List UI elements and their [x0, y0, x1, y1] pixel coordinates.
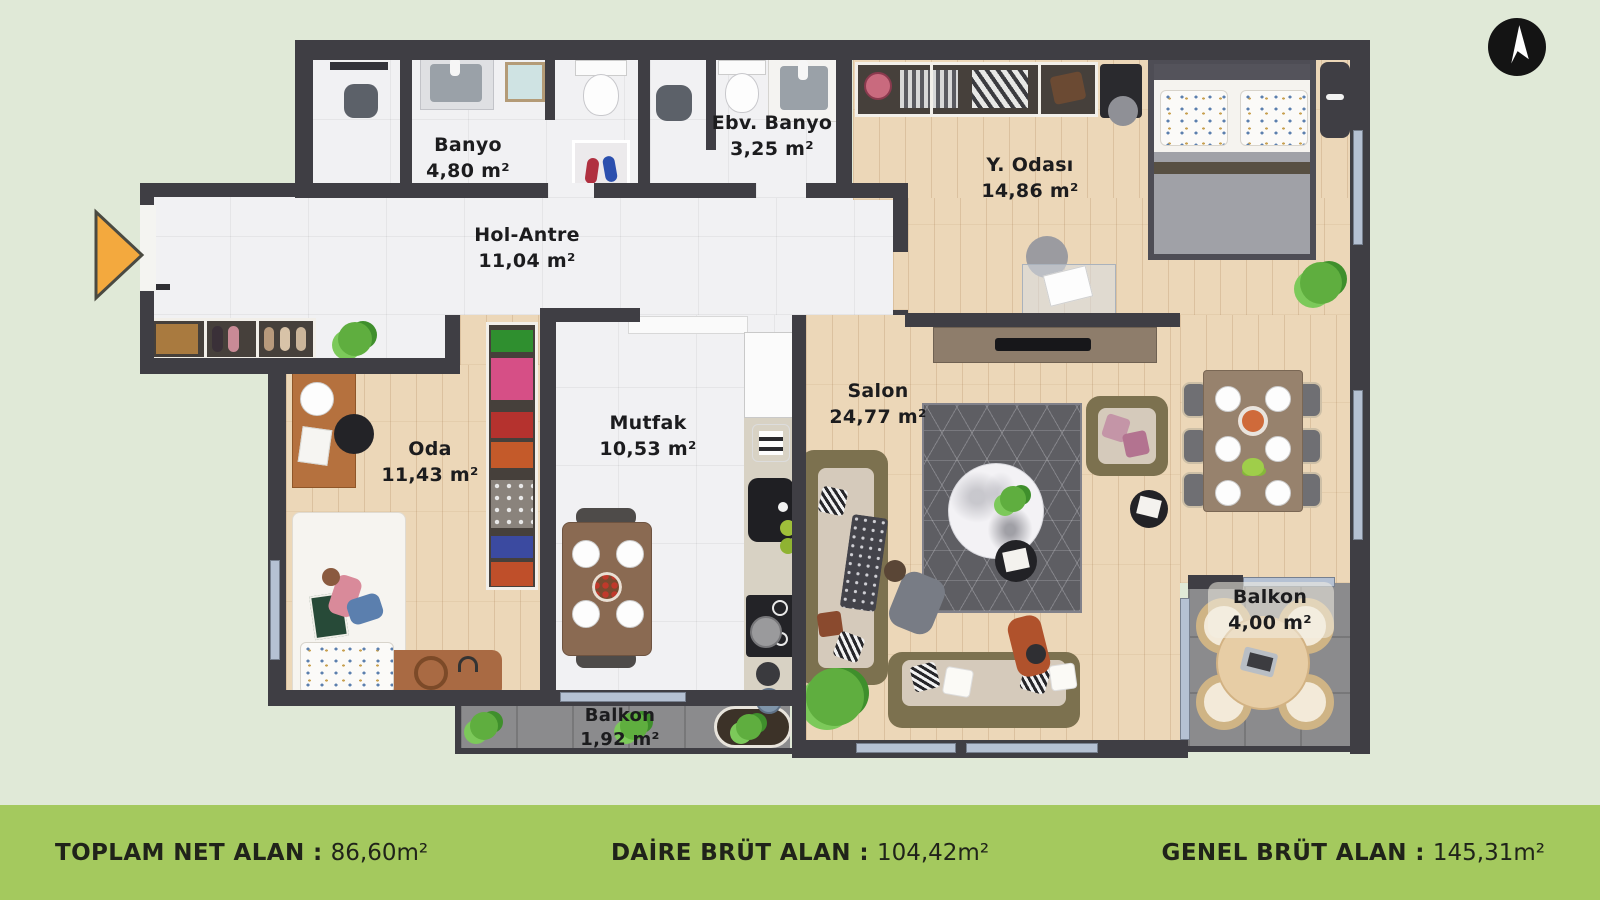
pillow: [1160, 90, 1228, 146]
tv: [995, 338, 1091, 351]
serving-bowl: [1238, 406, 1268, 436]
bed-headboard: [1154, 64, 1310, 80]
wall-kitchen-top: [540, 308, 640, 322]
room-label-hol-antre: Hol-Antre11,04 m²: [447, 222, 607, 274]
slipper: [228, 326, 239, 352]
balcony-plant: [470, 712, 498, 740]
plate: [1265, 386, 1291, 412]
shower-head: [344, 84, 378, 118]
wall-bath-divider: [545, 60, 555, 120]
summary-value: 145,31m²: [1433, 840, 1545, 866]
wall-top: [295, 40, 1370, 60]
nightstand: [1320, 62, 1350, 138]
kettle: [756, 662, 780, 686]
shoe-rack-divider: [256, 320, 259, 358]
summary-label: GENEL BRÜT ALAN :: [1162, 840, 1425, 866]
shower-head: [656, 85, 692, 121]
throw-pillow: [818, 486, 849, 517]
room-label-balkon-large: Balkon4,00 m²: [1190, 584, 1350, 636]
shoe-rack-divider: [204, 320, 207, 358]
wardrobe-divider: [1038, 64, 1041, 114]
person-head: [322, 568, 340, 586]
window-living-2: [966, 743, 1098, 753]
entrance-arrow-icon: [92, 208, 148, 302]
window-living-1: [856, 743, 956, 753]
wall-left-upper: [295, 40, 313, 198]
wall-jog: [445, 315, 460, 370]
entry-door-mark: [156, 284, 170, 290]
floor-plant: [806, 668, 864, 726]
folded-clothes: [900, 70, 958, 108]
shelf-box-red: [491, 412, 533, 438]
summary-value: 104,42m²: [877, 840, 989, 866]
toilet-bowl: [583, 74, 619, 116]
summary-general-gross-area: GENEL BRÜT ALAN : 145,31m²: [1162, 805, 1545, 900]
potted-plant: [1300, 262, 1342, 304]
planter-plant: [736, 714, 762, 740]
faucet: [778, 502, 788, 512]
faucet: [798, 60, 808, 80]
door-opening-bedroom: [893, 252, 908, 310]
slipper: [280, 327, 290, 351]
person-head: [1026, 644, 1046, 664]
door-opening-ensuite: [756, 183, 806, 198]
window-kitchen: [560, 692, 686, 702]
headphones: [458, 656, 478, 672]
plate: [616, 600, 644, 628]
plate: [1265, 436, 1291, 462]
balcony-rail-bottom-right: [1188, 746, 1353, 752]
window-bedroom: [1353, 130, 1363, 245]
summary-value: 86,60m²: [331, 840, 428, 866]
plate: [1215, 436, 1241, 462]
wall-bath-bottom: [295, 183, 908, 198]
wall-room-bottom: [268, 690, 560, 706]
throw-pillow: [942, 666, 974, 698]
room-label-mutfak: Mutfak10,53 m²: [568, 410, 728, 462]
grapes: [1242, 458, 1264, 476]
potted-plant: [338, 322, 372, 356]
room-label-y-odasi: Y. Odası14,86 m²: [950, 152, 1110, 204]
slipper: [296, 327, 306, 351]
plate: [572, 600, 600, 628]
shower-rail: [330, 62, 388, 70]
slipper: [212, 326, 223, 352]
summary-label: TOPLAM NET ALAN :: [55, 840, 323, 866]
burner: [772, 600, 788, 616]
shelf-box-orange2: [491, 562, 533, 586]
summary-net-area: TOPLAM NET ALAN : 86,60m²: [55, 805, 428, 900]
plate: [616, 540, 644, 568]
wall-hall-top: [140, 183, 312, 197]
hat-box: [864, 72, 892, 100]
papers: [298, 426, 333, 466]
mirror: [505, 62, 545, 102]
floor-plan-page: Banyo4,80 m² Ebv. Banyo3,25 m² Y. Odası1…: [0, 0, 1600, 900]
wall-tv: [905, 313, 1180, 327]
north-arrow-icon: [1486, 16, 1548, 78]
summary-gross-area: DAİRE BRÜT ALAN : 104,42m²: [611, 805, 989, 900]
balcony-rail-left: [455, 700, 461, 752]
window-balcony-side: [1180, 598, 1190, 740]
plate: [572, 540, 600, 568]
mat-ring-decor: [414, 656, 448, 690]
faucet: [450, 58, 460, 76]
folded-clothes: [972, 70, 1028, 108]
pink-pillow: [1122, 430, 1150, 458]
shoe-box: [156, 324, 198, 354]
kitchen-counter-top: [628, 316, 748, 334]
wardrobe-divider: [930, 64, 933, 114]
person-head: [884, 560, 906, 582]
wall-hall-bottom: [140, 358, 460, 374]
wall-bath-ensuite: [638, 60, 650, 198]
summary-label: DAİRE BRÜT ALAN :: [611, 840, 869, 866]
window-dining: [1353, 390, 1363, 540]
room-label-banyo: Banyo4,80 m²: [388, 132, 548, 184]
window-room: [270, 560, 280, 660]
shelf-box-blue: [491, 536, 533, 558]
table-plant: [1000, 486, 1026, 512]
plate: [1215, 386, 1241, 412]
room-label-balkon-small: Balkon1,92 m²: [540, 704, 700, 752]
slipper: [264, 327, 274, 351]
shelf-box-green: [491, 330, 533, 352]
door-opening-bathroom: [548, 183, 594, 198]
wall-room-kitchen: [540, 315, 556, 695]
room-label-ebv-banyo: Ebv. Banyo3,25 m²: [692, 110, 852, 162]
plate: [1215, 480, 1241, 506]
fridge: [744, 332, 798, 418]
toaster: [752, 424, 790, 462]
summary-bar: TOPLAM NET ALAN : 86,60m² DAİRE BRÜT ALA…: [0, 805, 1600, 900]
shelf-box-pink: [491, 358, 533, 400]
throw-pillow: [1048, 662, 1077, 691]
pillow: [300, 642, 394, 694]
pot: [750, 616, 782, 648]
nightstand-handle: [1326, 94, 1344, 100]
room-label-salon: Salon24,77 m²: [798, 378, 958, 430]
toilet-bowl: [725, 73, 759, 113]
room-label-oda: Oda11,43 m²: [350, 436, 510, 488]
fruit-bowl: [592, 572, 622, 602]
plate: [1265, 480, 1291, 506]
blanket-stripe: [1154, 162, 1310, 174]
pillow: [1240, 90, 1308, 146]
decor-plate: [300, 382, 334, 416]
desk-chair: [1108, 96, 1138, 126]
